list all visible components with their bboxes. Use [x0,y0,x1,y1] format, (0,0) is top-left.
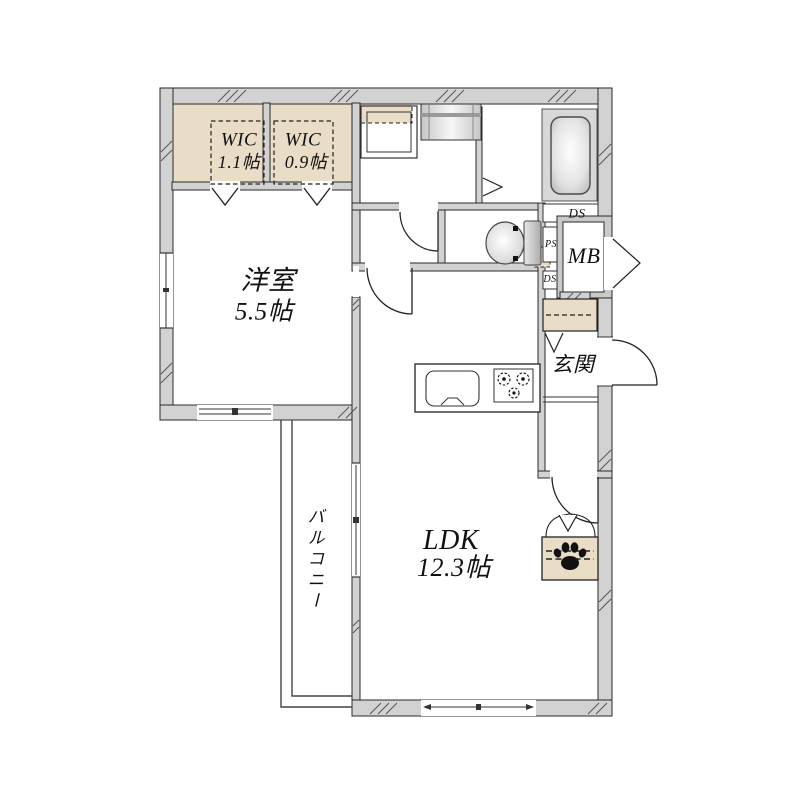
entrance-label: 玄関 [552,355,595,376]
wic2-area: 0.9帖 [285,153,328,171]
wall-top [160,88,612,104]
wic2-label: WIC [285,131,321,150]
toilet-hinge-bottom [513,256,518,261]
pipe-space-label: PS [545,240,557,250]
kitchen-sink-icon [426,371,479,406]
toilet-icon [486,222,524,264]
western-room-label: 洋室 [241,268,296,295]
window-bottom-mid-mark [476,704,481,710]
kitchen [415,364,540,412]
wic1-area: 1.1帖 [218,153,261,171]
bath-door-marker [483,178,502,196]
toilet [486,221,550,267]
bathtub-icon [551,117,590,194]
western-room-area: 5.5帖 [235,300,293,325]
stove-burners-icon [494,369,533,402]
washbasin-edge [421,113,481,117]
floor-plan-drawing [0,0,800,800]
shoe-cabinet-door-marker [545,333,563,352]
meter-box-label: MB [568,245,601,267]
wall-right [598,88,612,716]
pet-station [542,514,598,580]
window-left-mid-mark [163,288,169,292]
wic2-door-marker [304,188,330,205]
bathroom [483,109,597,201]
ldk-label: LDK [423,527,479,555]
wall-westroom-right-upper [352,103,360,263]
duct-space-mid-label: DS [543,275,556,285]
toilet-hinge-top [513,226,518,231]
meter-box-door-swing [613,239,640,288]
corridor-ldk-door-arc [367,268,412,314]
washroom-door-arc [400,212,438,251]
closet-door-markers [212,188,330,205]
wall-washroom-bottom [352,203,545,210]
washroom [361,104,481,158]
floorplan-page: WIC 1.1帖 WIC 0.9帖 洋室 5.5帖 LDK 12.3帖 バルコニ… [0,0,800,800]
meter-box-door-gap [604,237,613,290]
washbasin-icon [421,104,481,140]
slider-ldk-mid-mark [353,517,359,523]
wic1-label: WIC [221,131,257,150]
windows [160,253,536,716]
slider-west-mid-mark [232,408,238,415]
wall-toilet-left [438,210,445,263]
ldk-area: 12.3帖 [417,555,491,581]
toilet-tank [524,221,541,265]
pet-station-door-marker [559,515,577,531]
front-door-gap [597,337,613,386]
wic1-door-marker [212,188,238,205]
balcony-label: バルコニー [306,508,323,613]
duct-space-top-label: DS [569,207,586,220]
front-door-arc [612,340,657,385]
